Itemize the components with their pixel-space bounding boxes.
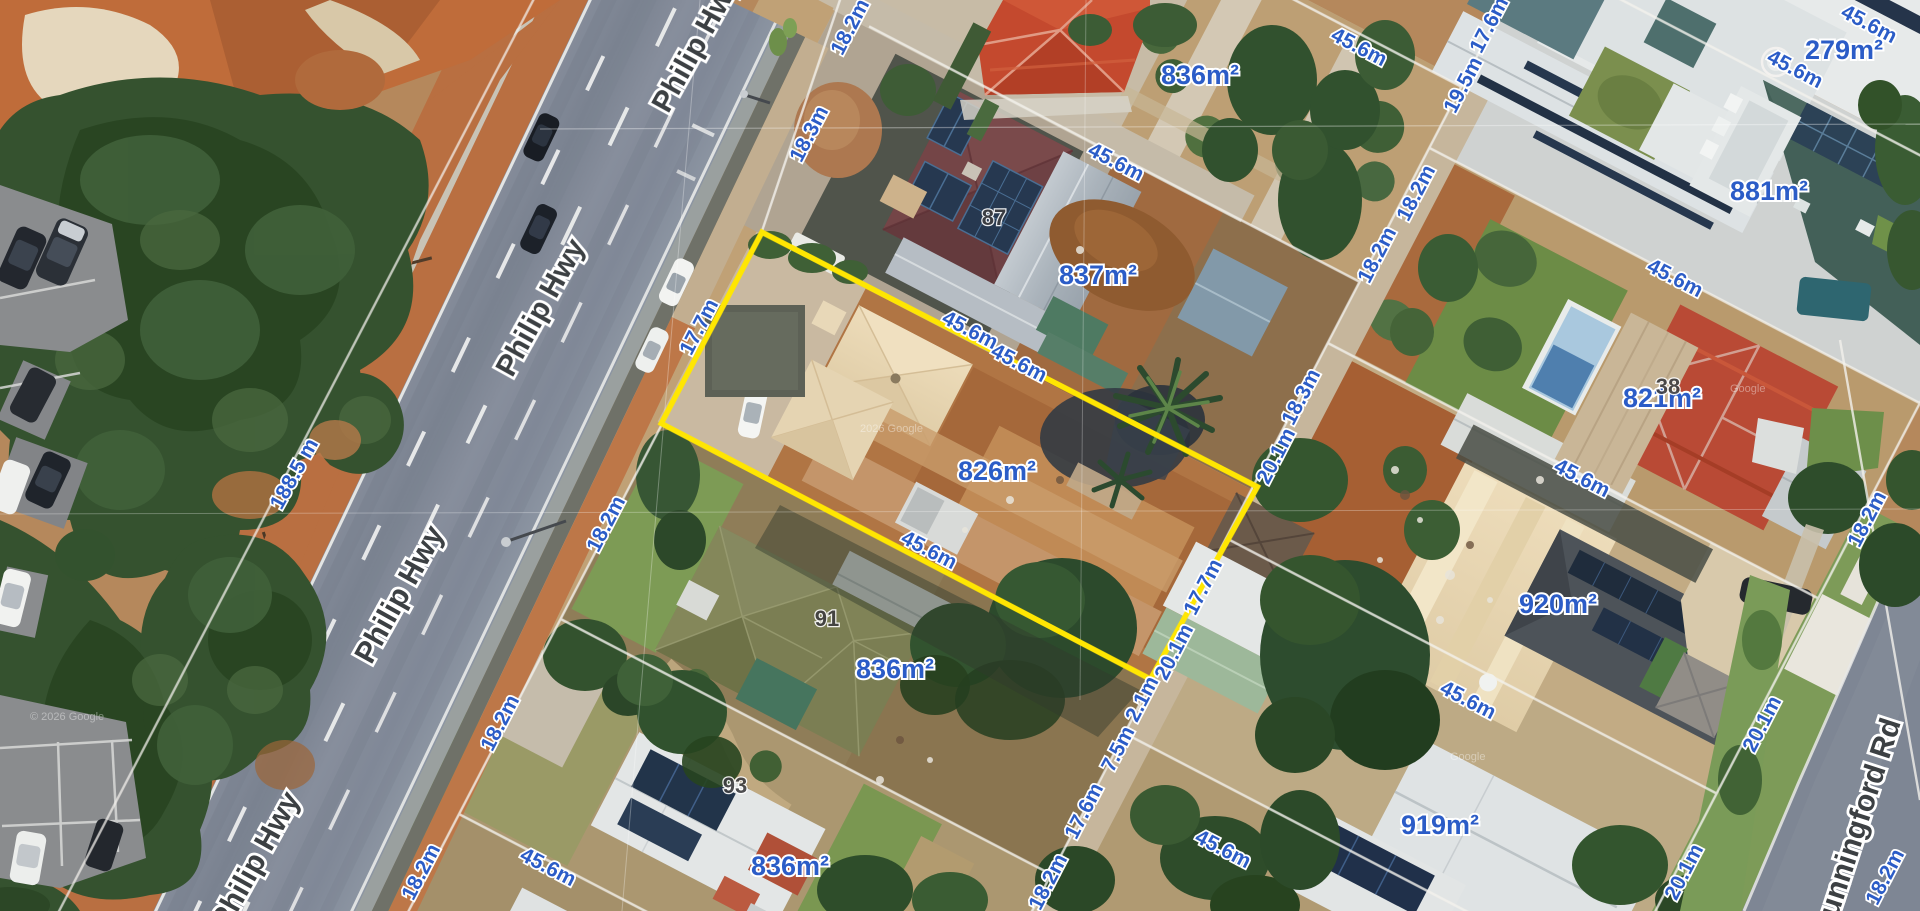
svg-text:836m²: 836m² bbox=[1161, 60, 1239, 90]
svg-text:93: 93 bbox=[723, 773, 747, 798]
svg-text:919m²: 919m² bbox=[1401, 810, 1479, 840]
svg-text:826m²: 826m² bbox=[958, 456, 1036, 486]
svg-text:881m²: 881m² bbox=[1730, 176, 1808, 206]
svg-text:38: 38 bbox=[1656, 374, 1680, 399]
svg-text:837m²: 837m² bbox=[1059, 260, 1137, 290]
svg-text:© 2026 Google: © 2026 Google bbox=[30, 711, 104, 723]
svg-text:836m²: 836m² bbox=[751, 851, 829, 881]
svg-text:836m²: 836m² bbox=[856, 654, 934, 684]
svg-text:920m²: 920m² bbox=[1519, 589, 1597, 619]
svg-text:Google: Google bbox=[1450, 751, 1485, 763]
svg-text:2026 Google: 2026 Google bbox=[860, 423, 923, 435]
svg-text:Google: Google bbox=[1730, 383, 1765, 395]
svg-text:87: 87 bbox=[982, 205, 1006, 230]
svg-text:279m²: 279m² bbox=[1805, 35, 1883, 65]
svg-text:91: 91 bbox=[815, 606, 839, 631]
